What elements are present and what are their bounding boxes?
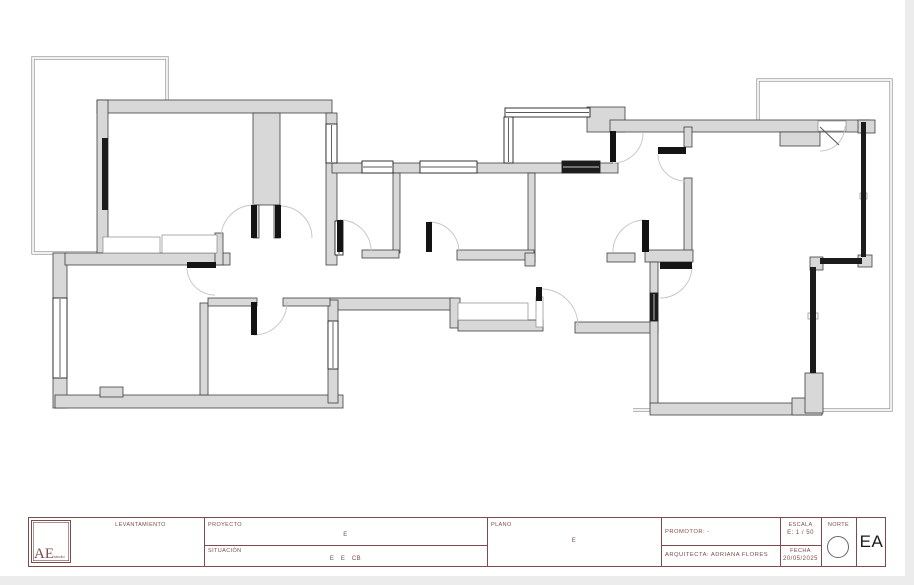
wall-recess bbox=[103, 237, 160, 253]
door-leaf bbox=[536, 287, 542, 301]
door-leaf bbox=[426, 222, 432, 252]
glazed-wall bbox=[861, 122, 866, 257]
glazed-wall bbox=[810, 267, 816, 373]
floor-plan bbox=[0, 0, 914, 585]
wall-recess bbox=[458, 303, 528, 320]
wall bbox=[458, 320, 543, 331]
door-leaf bbox=[642, 220, 649, 252]
wall bbox=[283, 298, 330, 306]
levantamiento-label: LEVANTAMIENTO bbox=[77, 522, 204, 528]
promotor: PROMOTOR: - bbox=[665, 529, 710, 535]
wall bbox=[55, 395, 343, 408]
wall bbox=[362, 250, 399, 258]
door-swing-arc bbox=[660, 266, 692, 298]
logo-text: AE bbox=[34, 548, 54, 561]
door-leaf bbox=[275, 205, 281, 238]
logo-subtext: studio bbox=[54, 554, 65, 559]
wall bbox=[528, 173, 535, 262]
north-symbol bbox=[827, 536, 849, 558]
door-swing-arc bbox=[613, 133, 643, 163]
studio-logo: AE studio bbox=[31, 520, 71, 563]
wall bbox=[684, 178, 692, 252]
wall bbox=[805, 373, 823, 413]
wall bbox=[575, 322, 658, 333]
door-swing-arc bbox=[187, 268, 215, 295]
title-block: AE studio LEVANTAMIENTO PROYECTO E SITUA… bbox=[28, 517, 886, 567]
divider bbox=[204, 545, 487, 546]
wall bbox=[200, 303, 208, 395]
door-swing-arc bbox=[221, 205, 254, 238]
door-swing-arc bbox=[429, 222, 459, 252]
escala-value: E: 1 / 50 bbox=[780, 530, 821, 536]
proyecto-value: E bbox=[204, 532, 487, 538]
wall bbox=[858, 120, 875, 133]
door-leaf bbox=[658, 147, 686, 154]
door-swing-arc bbox=[658, 154, 685, 181]
arquitecta: ARQUITECTA: ADRIANA FLORES bbox=[665, 552, 768, 558]
divider bbox=[661, 518, 662, 566]
wall bbox=[645, 250, 693, 262]
wall bbox=[393, 173, 400, 253]
wall-recess bbox=[536, 297, 543, 327]
wall bbox=[780, 132, 820, 146]
drawing-sheet: AE studio LEVANTAMIENTO PROYECTO E SITUA… bbox=[0, 0, 914, 585]
door-leaf bbox=[610, 131, 616, 162]
wall bbox=[253, 113, 280, 205]
wall bbox=[607, 253, 635, 262]
page-edge bbox=[905, 0, 914, 585]
door-swing-arc bbox=[613, 220, 645, 252]
wall-recess bbox=[162, 235, 217, 253]
wall bbox=[650, 262, 658, 295]
glazed-wall bbox=[820, 258, 862, 264]
escala-label: ESCALA bbox=[780, 522, 821, 528]
wall bbox=[100, 387, 123, 397]
door-leaf bbox=[660, 262, 692, 269]
sheet-code: EA bbox=[856, 518, 887, 566]
glazed-wall bbox=[102, 138, 108, 210]
wall bbox=[457, 250, 534, 260]
door-swing-arc bbox=[340, 220, 371, 251]
divider bbox=[661, 545, 821, 546]
wall bbox=[525, 253, 535, 266]
norte-label: NORTE bbox=[821, 522, 856, 528]
page-edge bbox=[0, 576, 914, 585]
wall bbox=[650, 320, 658, 405]
door-leaf bbox=[251, 205, 257, 238]
door-leaf bbox=[337, 220, 343, 252]
fecha-label: FECHA bbox=[780, 548, 821, 554]
situacion-label: SITUACIÓN bbox=[208, 548, 242, 554]
wall bbox=[97, 100, 332, 113]
plano-value: E bbox=[487, 538, 661, 544]
proyecto-label: PROYECTO bbox=[208, 522, 242, 528]
plano-label: PLANO bbox=[491, 522, 512, 528]
wall bbox=[684, 127, 692, 147]
door-swing-arc bbox=[542, 289, 578, 326]
door-swing-arc bbox=[254, 302, 287, 335]
door-leaf bbox=[187, 262, 216, 268]
door-swing-arc bbox=[280, 206, 312, 238]
fecha-value: 20/05/2025 bbox=[780, 556, 821, 562]
door-leaf bbox=[251, 302, 257, 335]
wall bbox=[330, 298, 453, 310]
wall bbox=[208, 298, 257, 306]
situacion-value: E E CB bbox=[204, 556, 487, 562]
